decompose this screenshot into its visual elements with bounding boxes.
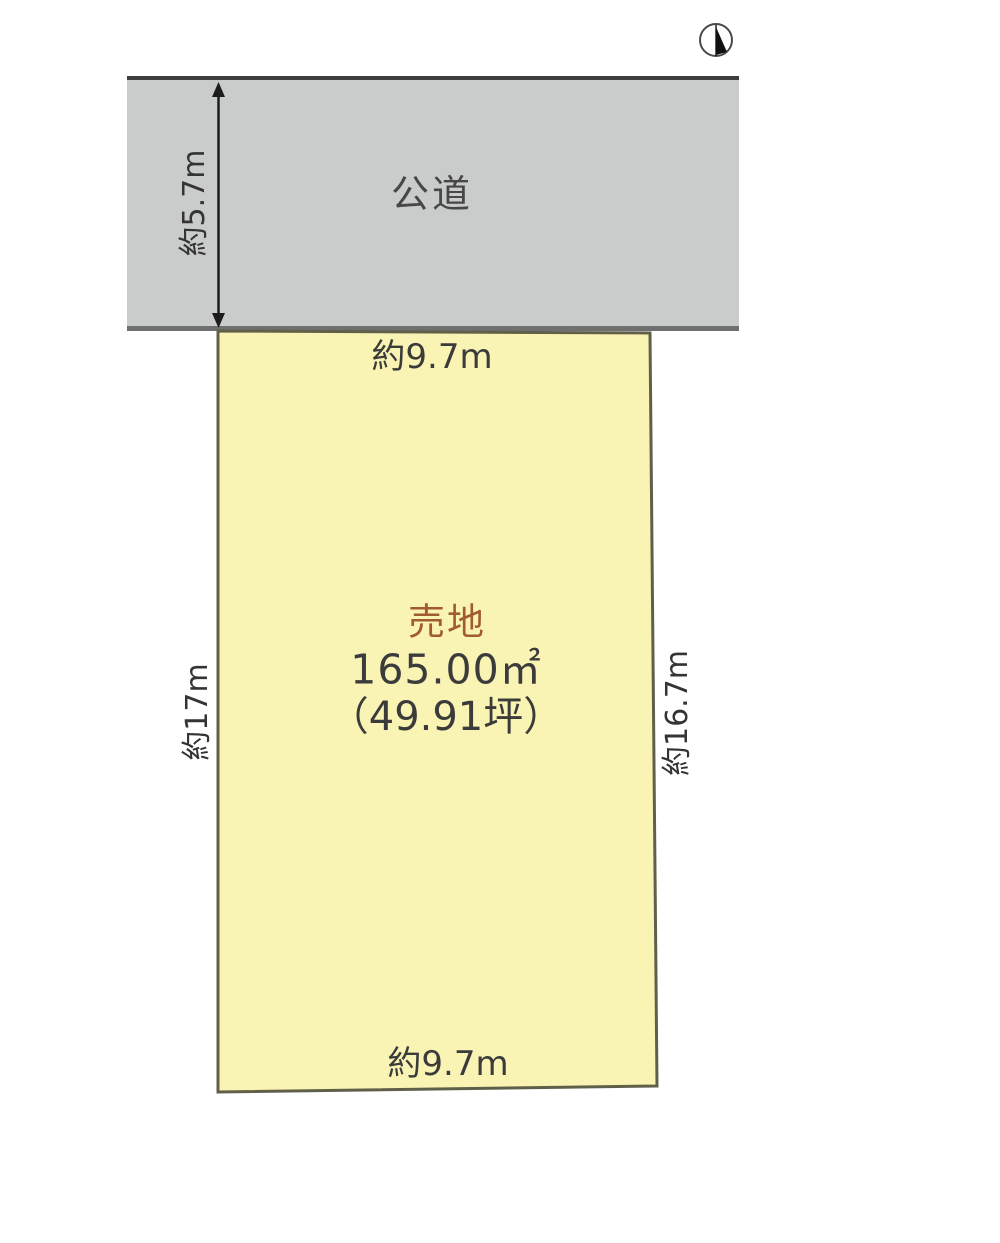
plot-depth-left-label: 約17m (183, 663, 213, 760)
road-width-label: 約5.7m (180, 150, 210, 257)
plot-depth-right-label: 約16.7m (663, 650, 693, 776)
compass-needle-fill (716, 27, 727, 55)
sale-label: 売地 (408, 604, 486, 641)
plot-frontage-top-label: 約9.7m (371, 340, 492, 374)
road-label: 公道 (391, 175, 473, 213)
plot-area-tsubo-label: （49.91坪） (329, 697, 564, 737)
compass-north-icon (700, 24, 732, 56)
plot-area-sqm-label: 165.00㎡ (350, 650, 541, 691)
plot-frontage-bottom-label: 約9.7m (387, 1047, 508, 1081)
land-plot-diagram: 公道 約5.7m 約9.7m 売地 165.00㎡ （49.91坪） 約17m … (0, 0, 1000, 1243)
road-top-edge (127, 76, 739, 80)
